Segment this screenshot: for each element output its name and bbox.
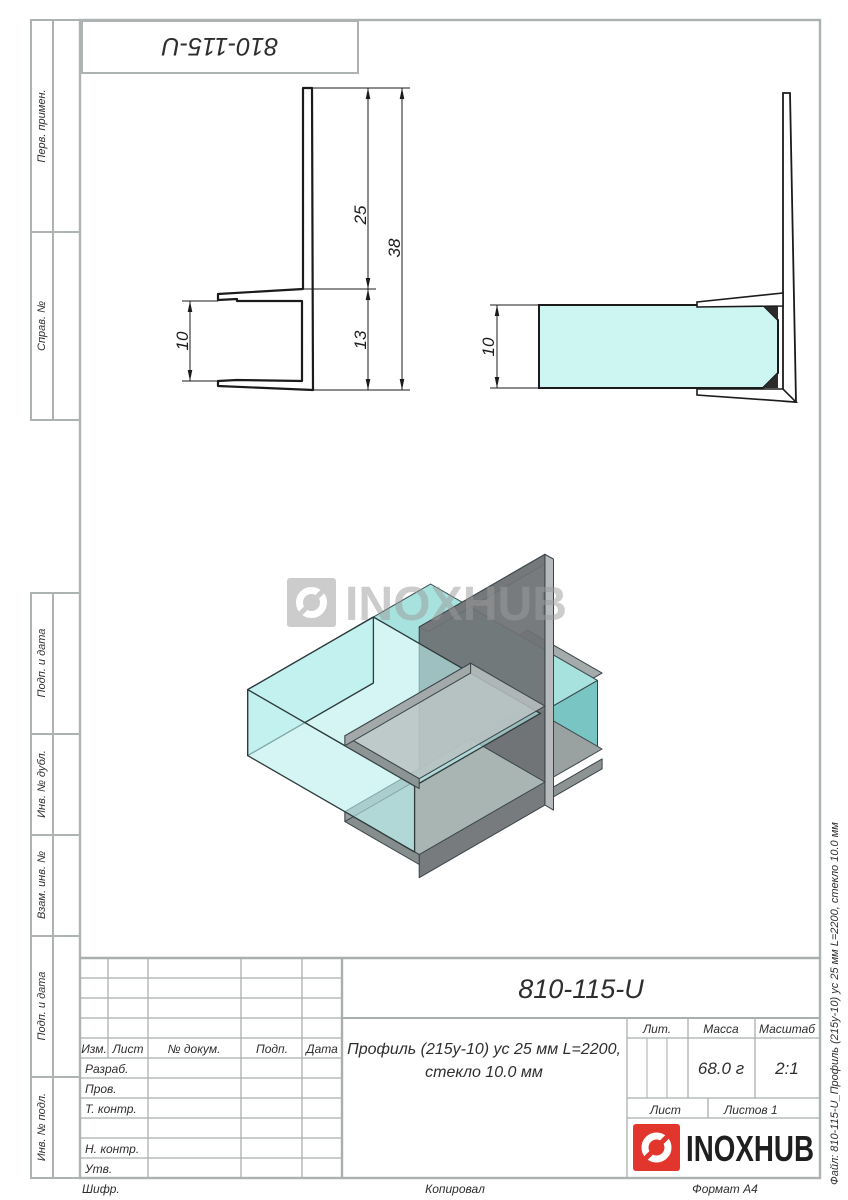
sheet-canvas: Перв. примен. Справ. № Подп. и дата Инв.… [0, 0, 848, 1200]
brand-logo-text: INOXHUB [686, 1128, 814, 1169]
brand-logo: INOXHUB [633, 1124, 814, 1171]
margin-label: Перв. примен. [36, 89, 48, 162]
drawing-sheet: Перв. примен. Справ. № Подп. и дата Инв.… [0, 0, 848, 1200]
dim-10-side: 10 [479, 337, 498, 356]
massa-label: Масса [703, 1022, 739, 1036]
top-designation-text: 810-115-U [161, 32, 278, 60]
dim-10-front: 10 [173, 331, 192, 350]
profile-lower-lip-side [697, 389, 796, 402]
col-dokum: № докум. [168, 1042, 221, 1056]
masshtab-value: 2:1 [774, 1059, 799, 1078]
list-label: Лист [649, 1103, 681, 1117]
col-list: Лист [112, 1042, 144, 1056]
margin-label: Инв. № подл. [36, 1093, 48, 1161]
margin-label: Справ. № [36, 301, 48, 351]
front-view: 25 38 13 10 [173, 88, 410, 390]
glass-section [539, 305, 778, 388]
sheet-footer: Шифр. Копировал Формат А4 [82, 1182, 758, 1196]
col-podp: Подп. [256, 1042, 288, 1056]
lit-label: Лит. [642, 1022, 671, 1036]
copied-label: Копировал [425, 1182, 485, 1196]
margin-label: Подп. и дата [36, 972, 48, 1041]
col-data: Дата [304, 1042, 338, 1056]
cipher-label: Шифр. [82, 1182, 120, 1196]
file-note: Файл: 810-115-U_Профиль (215у-10) ус 25 … [829, 822, 841, 1185]
stamp-name-line2: стекло 10.0 мм [425, 1064, 543, 1081]
listov-label: Листов 1 [723, 1103, 778, 1117]
stamp-row-labels: Разраб. Пров. Т. контр. Н. контр. Утв. [84, 1062, 139, 1176]
margin-label: Подп. и дата [36, 629, 48, 698]
margin-label: Инв. № дубл. [36, 750, 48, 818]
row-t-kontr: Т. контр. [85, 1102, 137, 1116]
dim-13: 13 [351, 330, 370, 349]
profile-upper-lip-side [697, 293, 783, 307]
dim-25: 25 [351, 205, 370, 225]
row-razrab: Разраб. [85, 1062, 128, 1076]
side-view: 10 [479, 93, 796, 402]
stamp-header-labels: Изм. Лист № докум. Подп. Дата [81, 1042, 338, 1056]
profile-cross-section [218, 88, 313, 390]
masshtab-label: Масштаб [759, 1022, 816, 1036]
row-n-kontr: Н. контр. [85, 1142, 139, 1156]
col-izm: Изм. [81, 1042, 107, 1056]
dim-38: 38 [385, 238, 404, 257]
watermark-text: INOXHUB [345, 578, 567, 631]
stamp-name-line1: Профиль (215у-10) ус 25 мм L=2200, [347, 1041, 621, 1058]
massa-value: 68.0 г [698, 1059, 744, 1078]
row-prov: Пров. [85, 1082, 117, 1096]
row-utv: Утв. [84, 1162, 112, 1176]
front-dim-arrows [188, 88, 405, 390]
front-extension-lines [182, 88, 410, 390]
stamp-designation: 810-115-U [518, 974, 644, 1004]
margin-label: Взам. инв. № [36, 851, 48, 919]
profile-wall-side [783, 93, 796, 402]
margin-labels: Перв. примен. Справ. № Подп. и дата Инв.… [36, 89, 48, 1161]
watermark: INOXHUB [287, 578, 567, 631]
format-label: Формат А4 [692, 1182, 758, 1196]
